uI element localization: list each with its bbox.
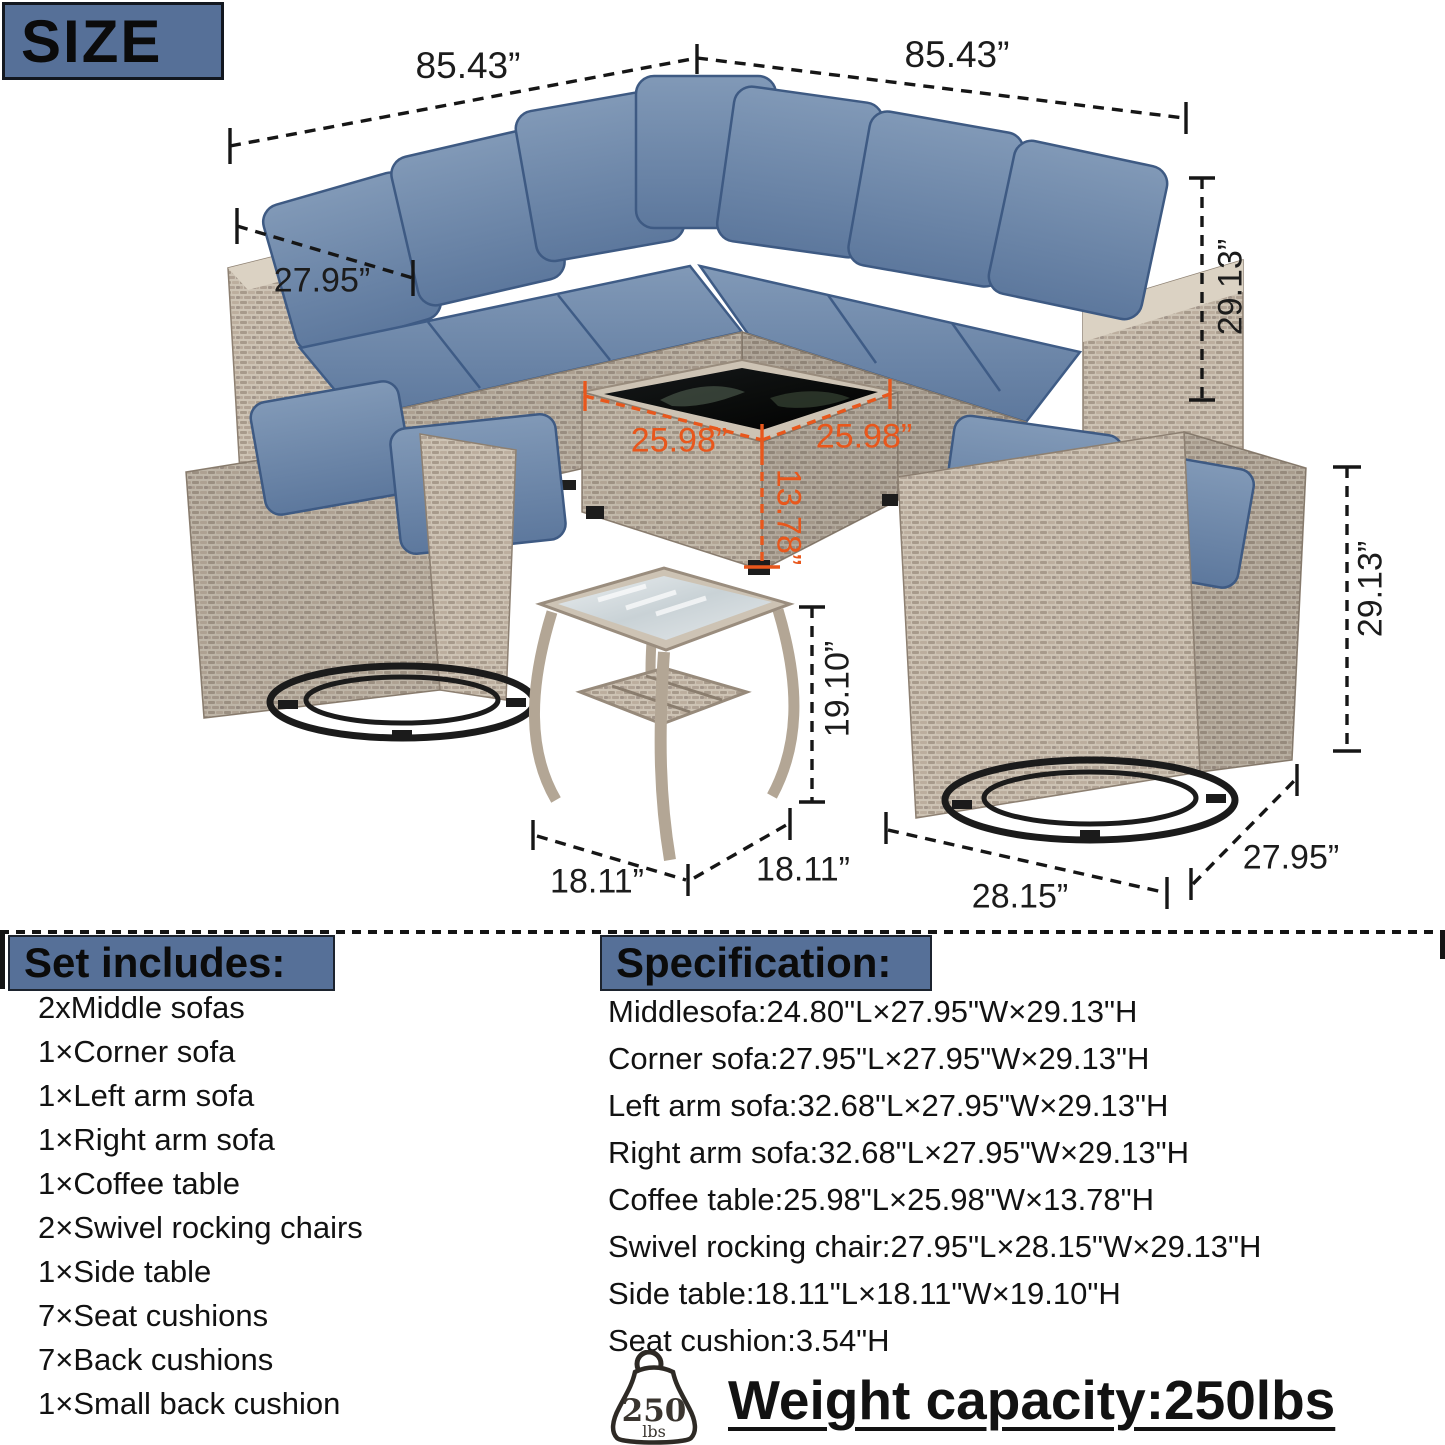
right-edge-bar [1440, 933, 1445, 959]
list-item: 1×Right arm sofa [38, 1118, 363, 1162]
furniture-photo-area: 85.43” 85.43” 27.95” 29.13” 25.98” 25.98… [0, 0, 1445, 930]
list-item: 7×Seat cushions [38, 1294, 363, 1338]
spec-item: Middlesofa:24.80"L×27.95"W×29.13"H [608, 988, 1261, 1035]
coffee-table [582, 360, 898, 575]
dim-label-side-table-length-right: 18.11” [756, 851, 850, 890]
spec-item: Left arm sofa:32.68"L×27.95"W×29.13"H [608, 1082, 1261, 1129]
spec-item: Right arm sofa:32.68"L×27.95"W×29.13"H [608, 1129, 1261, 1176]
weight-kettlebell-icon: 250 lbs [608, 1350, 700, 1445]
spec-item: Coffee table:25.98"L×25.98"W×13.78"H [608, 1176, 1261, 1223]
size-title-box: SIZE [2, 2, 224, 80]
left-edge-bar [0, 933, 5, 989]
dim-label-chair-depth: 27.95” [1243, 839, 1339, 878]
specification-list: Middlesofa:24.80"L×27.95"W×29.13"H Corne… [608, 988, 1261, 1364]
furniture-illustration [0, 0, 1445, 930]
spec-item: Side table:18.11"L×18.11"W×19.10"H [608, 1270, 1261, 1317]
info-section: Set includes: Specification: 2xMiddle so… [0, 930, 1445, 1445]
size-title: SIZE [21, 7, 162, 76]
side-table [534, 568, 793, 860]
spec-item: Corner sofa:27.95"L×27.95"W×29.13"H [608, 1035, 1261, 1082]
dim-label-sofa-width-right: 85.43” [905, 34, 1010, 76]
dim-label-sofa-height: 29.13” [1212, 239, 1251, 335]
dim-label-coffee-length-left: 25.98” [631, 422, 727, 461]
specification-header: Specification: [600, 935, 932, 991]
weight-badge-unit: lbs [608, 1422, 700, 1441]
spec-item: Swivel rocking chair:27.95"L×28.15"W×29.… [608, 1223, 1261, 1270]
dim-label-chair-height: 29.13” [1352, 541, 1391, 637]
list-item: 7×Back cushions [38, 1338, 363, 1382]
list-item: 1×Left arm sofa [38, 1074, 363, 1118]
list-item: 2xMiddle sofas [38, 986, 363, 1030]
list-item: 1×Coffee table [38, 1162, 363, 1206]
set-includes-title: Set includes: [24, 939, 285, 987]
specification-title: Specification: [616, 939, 891, 987]
set-includes-header: Set includes: [8, 935, 335, 991]
list-item: 1×Corner sofa [38, 1030, 363, 1074]
dim-label-side-table-height: 19.10” [819, 641, 858, 737]
list-item: 1×Small back cushion [38, 1382, 363, 1426]
dim-label-sofa-width-left: 85.43” [416, 45, 521, 87]
list-item: 1×Side table [38, 1250, 363, 1294]
set-includes-list: 2xMiddle sofas 1×Corner sofa 1×Left arm … [38, 986, 363, 1426]
dim-label-coffee-length-right: 25.98” [816, 418, 912, 457]
weight-capacity-label: Weight capacity:250lbs [728, 1368, 1335, 1432]
dim-label-side-table-length-left: 18.11” [550, 863, 644, 902]
product-size-diagram: 85.43” 85.43” 27.95” 29.13” 25.98” 25.98… [0, 0, 1445, 1445]
section-divider-dashed [0, 930, 1445, 934]
spec-item: Seat cushion:3.54"H [608, 1317, 1261, 1364]
list-item: 2×Swivel rocking chairs [38, 1206, 363, 1250]
dim-label-coffee-height: 13.78” [769, 469, 808, 565]
dim-label-chair-width: 28.15” [972, 878, 1068, 917]
swivel-chair-right [898, 414, 1306, 840]
dim-label-sofa-arm-depth: 27.95” [274, 262, 370, 301]
